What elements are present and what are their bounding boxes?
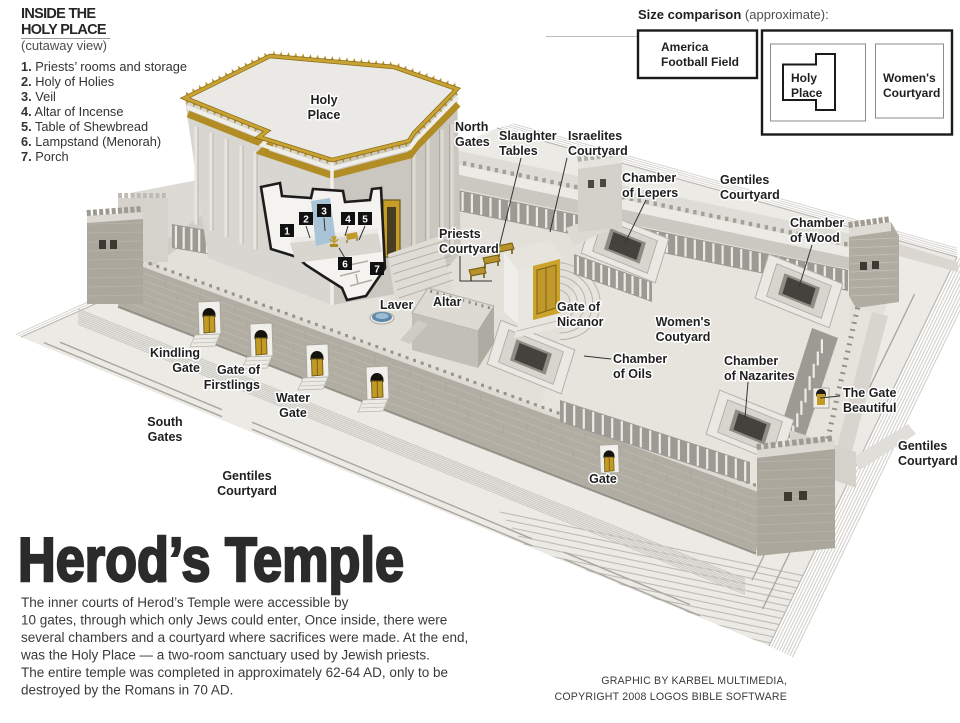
svg-text:Courtyard: Courtyard <box>439 242 499 256</box>
svg-text:Nicanor: Nicanor <box>557 315 604 329</box>
svg-text:Courtyard: Courtyard <box>898 454 958 468</box>
svg-text:3. Veil: 3. Veil <box>21 89 56 104</box>
svg-text:2: 2 <box>303 215 309 226</box>
svg-text:The Gate: The Gate <box>843 386 897 400</box>
svg-text:Gate of: Gate of <box>557 300 601 314</box>
svg-text:Gentiles: Gentiles <box>222 469 271 483</box>
svg-text:North: North <box>455 120 488 134</box>
svg-text:South: South <box>147 415 182 429</box>
svg-text:1. Priests’ rooms and storage: 1. Priests’ rooms and storage <box>21 59 187 74</box>
svg-text:Chamber: Chamber <box>613 352 667 366</box>
svg-text:Firstlings: Firstlings <box>204 378 260 392</box>
svg-text:7: 7 <box>374 265 380 276</box>
svg-text:Chamber: Chamber <box>724 354 778 368</box>
svg-text:of Oils: of Oils <box>613 367 652 381</box>
svg-text:Courtyard: Courtyard <box>720 188 780 202</box>
svg-text:Slaughter: Slaughter <box>499 129 557 143</box>
svg-text:Gentiles: Gentiles <box>720 173 769 187</box>
svg-text:10 gates, through which only J: 10 gates, through which only Jews could … <box>21 613 447 628</box>
svg-text:Chamber: Chamber <box>622 171 676 185</box>
svg-text:Place: Place <box>308 108 341 122</box>
svg-text:HOLY PLACE: HOLY PLACE <box>21 22 107 38</box>
svg-text:COPYRIGHT 2008 LOGOS BIBLE SOF: COPYRIGHT 2008 LOGOS BIBLE SOFTWARE <box>555 691 787 703</box>
svg-text:(cutaway view): (cutaway view) <box>21 38 107 53</box>
svg-text:Herod’s Temple: Herod’s Temple <box>18 526 404 595</box>
svg-text:was the Holy Place — a two-ro: was the Holy Place — a two-room sanctuar… <box>20 648 430 663</box>
svg-text:Football Field: Football Field <box>661 55 739 69</box>
svg-text:The entire temple was complete: The entire temple was completed in appro… <box>21 665 448 680</box>
svg-text:Gates: Gates <box>455 135 490 149</box>
svg-text:7. Porch: 7. Porch <box>21 149 69 164</box>
svg-text:of Wood: of Wood <box>790 231 840 245</box>
svg-text:Tables: Tables <box>499 144 538 158</box>
svg-text:Gates: Gates <box>148 430 183 444</box>
svg-text:4: 4 <box>345 215 351 226</box>
svg-text:4. Altar of Incense: 4. Altar of Incense <box>21 104 123 119</box>
svg-text:of Nazarites: of Nazarites <box>724 369 795 383</box>
svg-text:5: 5 <box>362 215 368 226</box>
svg-text:Altar: Altar <box>433 295 462 309</box>
svg-text:Priests: Priests <box>439 227 481 241</box>
svg-text:Courtyard: Courtyard <box>217 484 277 498</box>
svg-text:America: America <box>661 40 709 54</box>
svg-text:Gate: Gate <box>172 361 200 375</box>
svg-text:Laver: Laver <box>380 298 413 312</box>
svg-text:Women's: Women's <box>656 315 711 329</box>
svg-text:Israelites: Israelites <box>568 129 622 143</box>
svg-text:Water: Water <box>276 391 310 405</box>
svg-text:Gentiles: Gentiles <box>898 439 947 453</box>
svg-text:Holy: Holy <box>310 93 337 107</box>
svg-text:Kindling: Kindling <box>150 346 200 360</box>
svg-text:of Lepers: of Lepers <box>622 186 678 200</box>
svg-text:Size comparison (approximate):: Size comparison (approximate): <box>638 7 829 22</box>
svg-text:Courtyard: Courtyard <box>883 86 940 100</box>
svg-text:6. Lampstand (Menorah): 6. Lampstand (Menorah) <box>21 134 161 149</box>
svg-text:several chambers and a courtya: several chambers and a courtyard where s… <box>21 630 468 645</box>
svg-text:INSIDE THE: INSIDE THE <box>21 6 96 22</box>
svg-text:The inner courts of Herod’s Te: The inner courts of Herod’s Temple were … <box>21 595 349 610</box>
svg-text:Place: Place <box>791 86 823 100</box>
svg-text:Chamber: Chamber <box>790 216 844 230</box>
svg-text:6: 6 <box>342 260 348 271</box>
svg-text:GRAPHIC BY KARBEL MULTIMEDIA,: GRAPHIC BY KARBEL MULTIMEDIA, <box>601 675 787 687</box>
svg-text:2. Holy of Holies: 2. Holy of Holies <box>21 74 114 89</box>
svg-text:Gate of: Gate of <box>217 363 261 377</box>
svg-text:5. Table of Shewbread: 5. Table of Shewbread <box>21 119 148 134</box>
svg-text:Coutyard: Coutyard <box>656 330 711 344</box>
svg-text:Gate: Gate <box>589 472 617 486</box>
svg-text:destroyed by the Romans in 70: destroyed by the Romans in 70 AD. <box>21 683 233 698</box>
svg-text:1: 1 <box>284 227 290 238</box>
svg-text:Women's: Women's <box>883 71 936 85</box>
svg-text:Gate: Gate <box>279 406 307 420</box>
svg-text:Beautiful: Beautiful <box>843 401 896 415</box>
svg-text:3: 3 <box>321 207 327 218</box>
svg-text:Courtyard: Courtyard <box>568 144 628 158</box>
svg-text:Holy: Holy <box>791 71 817 85</box>
